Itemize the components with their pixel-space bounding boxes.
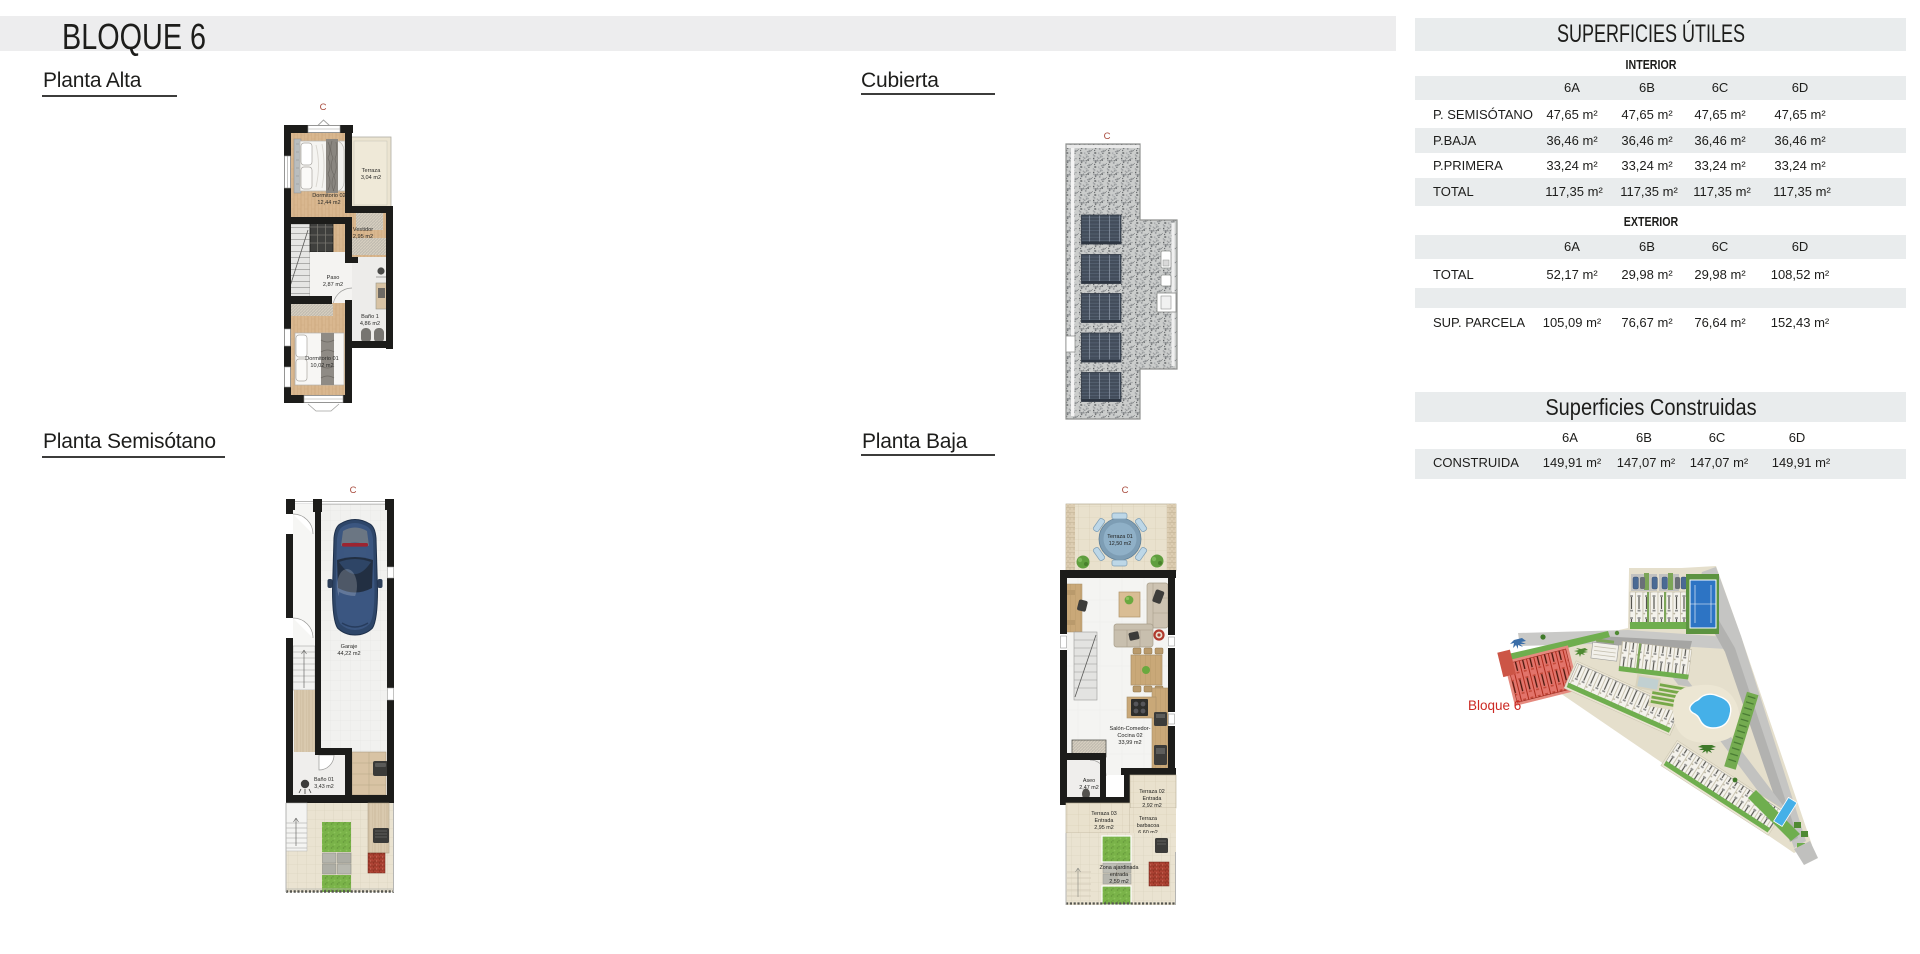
svg-text:Vestidor: Vestidor [353,227,373,233]
svg-text:Dormitorio 01: Dormitorio 01 [305,356,339,362]
svg-text:Entrada: Entrada [1143,796,1162,802]
svg-text:Entrada: Entrada [1095,818,1114,824]
svg-text:C: C [350,485,357,496]
svg-text:Terraza 01: Terraza 01 [1107,534,1132,540]
svg-text:entrada: entrada [1110,872,1128,878]
svg-text:C: C [1122,485,1129,496]
svg-text:Zona ajardinada: Zona ajardinada [1100,865,1139,871]
svg-text:12,44 m2: 12,44 m2 [317,200,340,206]
svg-text:Bloque 6: Bloque 6 [1468,698,1521,713]
svg-text:44,22 m2: 44,22 m2 [337,651,360,657]
svg-text:33,99 m2: 33,99 m2 [1118,740,1141,746]
svg-text:2,95 m2: 2,95 m2 [353,234,373,240]
svg-text:Terraza: Terraza [362,168,382,174]
svg-text:Terraza: Terraza [1139,816,1157,822]
svg-text:Salón-Comedor-: Salón-Comedor- [1109,726,1150,732]
svg-text:2,95 m2: 2,95 m2 [1094,825,1113,831]
svg-text:Cocina 02: Cocina 02 [1117,733,1142,739]
svg-text:Aseo: Aseo [1083,778,1095,784]
svg-text:2,87 m2: 2,87 m2 [323,282,343,288]
svg-text:Terraza 03: Terraza 03 [1091,811,1116,817]
svg-text:C: C [320,102,327,113]
svg-text:3,43 m2: 3,43 m2 [314,784,333,790]
svg-text:Garaje: Garaje [341,644,358,650]
svg-text:12,50 m2: 12,50 m2 [1109,541,1131,547]
svg-text:Baño 01: Baño 01 [314,777,334,783]
svg-text:3,04 m2: 3,04 m2 [361,175,381,181]
svg-text:2,59 m2: 2,59 m2 [1109,879,1128,885]
svg-text:Dormitorio 02: Dormitorio 02 [312,193,346,199]
svg-text:Baño 1: Baño 1 [361,314,379,320]
svg-text:10,02 m2: 10,02 m2 [310,363,333,369]
svg-text:C: C [1104,131,1111,142]
svg-text:Terraza 02: Terraza 02 [1139,789,1164,795]
svg-text:2,47 m2: 2,47 m2 [1079,785,1098,791]
svg-text:4,86 m2: 4,86 m2 [360,321,380,327]
svg-text:barbacoa: barbacoa [1137,823,1159,829]
svg-text:Paso: Paso [327,275,340,281]
